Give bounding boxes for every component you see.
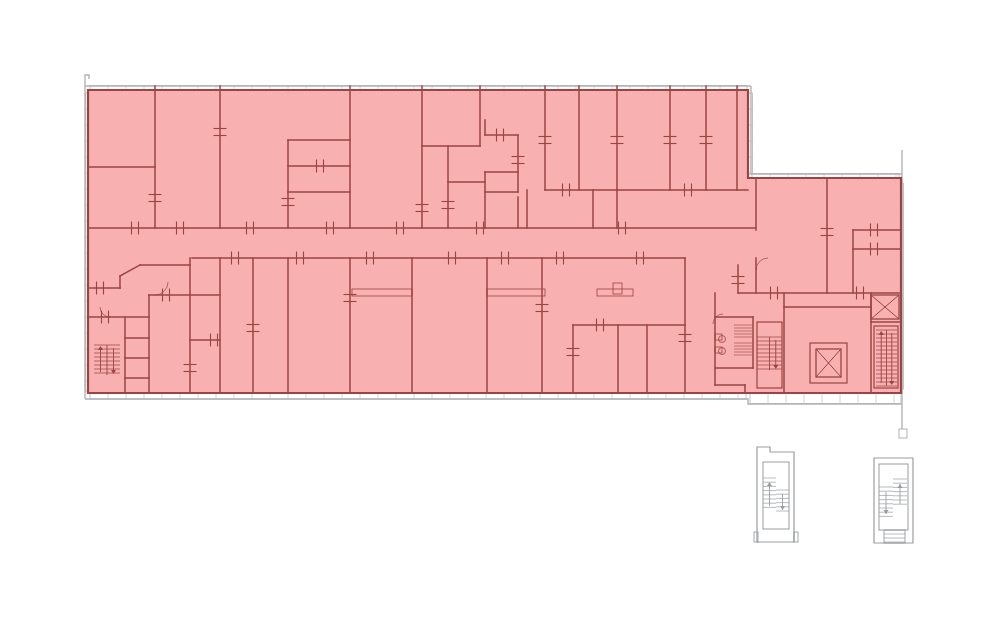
outline-stub — [899, 429, 907, 438]
floor-plan-viewport — [0, 0, 1000, 630]
stairwell-south-a — [754, 447, 798, 542]
floor-plan-drawing — [0, 0, 1000, 630]
stairwell-south-b — [874, 458, 913, 543]
window-band — [750, 394, 901, 404]
elevator-icon — [810, 343, 847, 383]
outline-segment — [751, 86, 902, 174]
